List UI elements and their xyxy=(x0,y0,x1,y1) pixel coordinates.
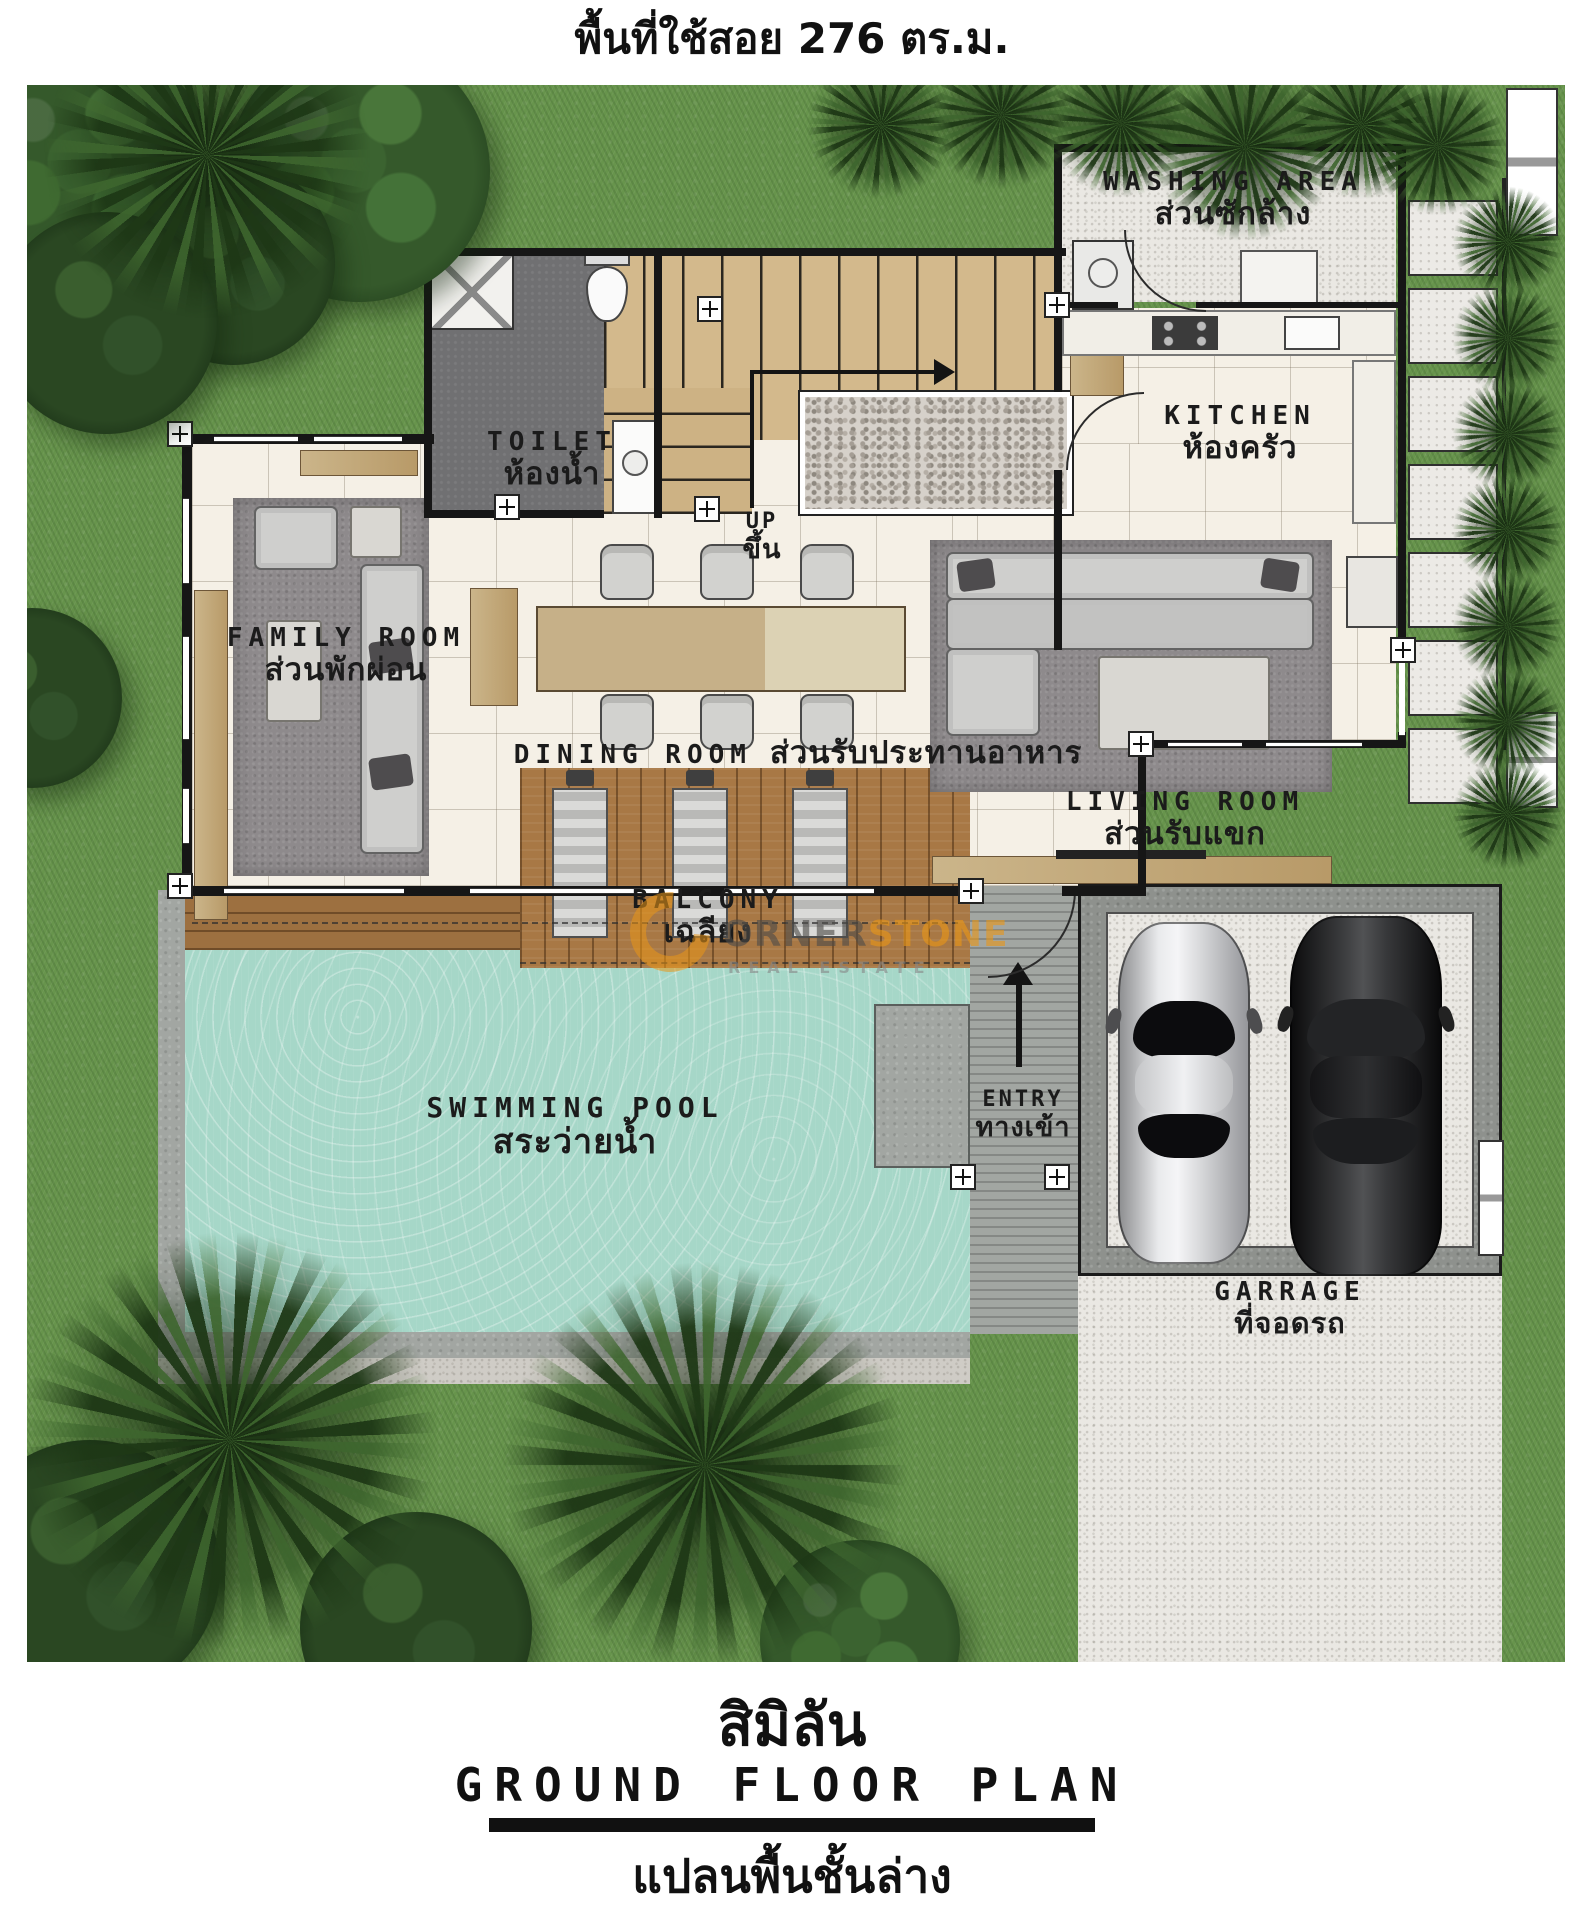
column-marker xyxy=(694,496,720,522)
window xyxy=(1266,742,1362,747)
column-marker xyxy=(1128,731,1154,757)
toilet-label: TOILET ห้องน้ำ xyxy=(487,428,617,492)
sun-lounger xyxy=(552,788,608,938)
usable-area-title: พื้นที่ใช้สอย 276 ตร.ม. xyxy=(575,6,1010,72)
dining-chair xyxy=(800,544,854,600)
sofa-pillow xyxy=(1260,557,1300,592)
lounger-headrest xyxy=(686,770,714,786)
wall xyxy=(1054,308,1062,392)
garage-side-door xyxy=(1478,1140,1504,1256)
window xyxy=(1399,652,1405,736)
window xyxy=(183,636,189,740)
window xyxy=(183,788,189,844)
wall xyxy=(596,248,1066,256)
stove xyxy=(1152,316,1218,350)
family-sofa xyxy=(360,564,424,854)
entry-arrow-stem xyxy=(1016,985,1022,1067)
wall xyxy=(654,248,662,518)
kitchen-counter-right xyxy=(1352,360,1396,524)
car-roof xyxy=(1135,1055,1233,1113)
car-windshield xyxy=(1307,999,1426,1060)
living-sofa-chaise xyxy=(946,648,1040,736)
column-marker xyxy=(494,494,520,520)
sofa-pillow xyxy=(956,558,996,593)
dining-table xyxy=(536,606,906,692)
sofa-pillow xyxy=(368,753,414,791)
car-windshield xyxy=(1133,1001,1236,1059)
living-sofa-back xyxy=(946,552,1314,600)
window-side-console xyxy=(194,590,228,920)
window xyxy=(314,436,402,442)
car-rear-window xyxy=(1138,1114,1230,1158)
side-table xyxy=(350,506,402,558)
dining-room-label: DINING ROOM ส่วนรับประทานอาหาร xyxy=(514,736,1083,771)
wall xyxy=(1062,302,1118,308)
wall xyxy=(1196,302,1398,308)
column-marker xyxy=(167,421,193,447)
washing-area-label: WASHING AREA ส่วนซักล้าง xyxy=(1103,168,1363,232)
laundry-table xyxy=(1240,250,1318,308)
sink-basin-icon xyxy=(622,450,648,476)
column-marker xyxy=(1044,292,1070,318)
kitchen-label: KITCHEN ห้องครัว xyxy=(1164,402,1316,466)
lounger-headrest xyxy=(566,770,594,786)
stair-arrow-stem-horizontal xyxy=(750,370,938,374)
family-room-label: FAMILY ROOM ส่วนพักผ่อน xyxy=(227,624,465,688)
window xyxy=(183,498,189,584)
wall xyxy=(424,248,432,518)
column-marker xyxy=(1390,637,1416,663)
column-marker xyxy=(950,1164,976,1190)
lounger-headrest xyxy=(806,770,834,786)
car-roof xyxy=(1310,1056,1422,1117)
swimming-pool-label: SWIMMING POOL สระว่ายน้ำ xyxy=(426,1092,723,1161)
tree-palm-small xyxy=(1452,758,1564,870)
living-sofa-seat xyxy=(946,598,1314,650)
dining-chair xyxy=(600,544,654,600)
window xyxy=(1168,742,1242,747)
wall xyxy=(1062,886,1146,896)
title-underline-bar xyxy=(489,1818,1095,1832)
floor-plan-page: พื้นที่ใช้สอย 276 ตร.ม. xyxy=(0,0,1585,1909)
column-marker xyxy=(167,873,193,899)
stair-arrow-stem-vertical xyxy=(750,372,754,508)
kitchen-counter-top xyxy=(1062,310,1396,356)
column-marker xyxy=(697,296,723,322)
living-room-label: LIVING ROOM ส่วนรับแขก xyxy=(1066,788,1304,852)
plan-title-en: GROUND FLOOR PLAN xyxy=(455,1758,1130,1812)
entry-label: ENTRY ทางเข้า xyxy=(976,1088,1071,1143)
stairs-up-label: UP ขึ้น xyxy=(743,510,782,565)
site-plot: WASHING AREA ส่วนซักล้าง KITCHEN ห้องครั… xyxy=(27,85,1565,1662)
living-coffee-table xyxy=(1098,656,1270,750)
tree-palm xyxy=(27,1230,440,1650)
watermark-tagline: REAL ESTATE xyxy=(728,958,933,977)
column-marker xyxy=(1044,1164,1070,1190)
garage-label: GARRAGE ที่จอดรถ xyxy=(1214,1278,1366,1340)
watermark-brand: ORNERSTONE xyxy=(722,914,1009,955)
black-car xyxy=(1290,916,1442,1276)
silver-car xyxy=(1118,922,1250,1264)
gravel-court xyxy=(800,392,1072,514)
kitchen-sink xyxy=(1284,316,1340,350)
sideboard xyxy=(470,588,518,706)
wall xyxy=(1054,470,1062,650)
wall-console xyxy=(300,450,418,476)
watermark: ORNERSTONE REAL ESTATE xyxy=(630,888,990,998)
sliding-door xyxy=(224,888,404,894)
fridge xyxy=(1346,556,1398,628)
window xyxy=(214,436,298,442)
armchair xyxy=(254,506,338,570)
site-plan: WASHING AREA ส่วนซักล้าง KITCHEN ห้องครั… xyxy=(27,85,1565,1662)
pool-ledge-platform xyxy=(874,1004,970,1168)
watermark-logo-icon xyxy=(614,876,727,989)
plan-title-th: แปลนพื้นชั้นล่าง xyxy=(632,1840,951,1909)
stair-arrow-head-icon xyxy=(934,359,955,385)
washing-machine-drum-icon xyxy=(1088,258,1118,288)
tree-bushy xyxy=(27,608,122,788)
wall xyxy=(1398,144,1406,650)
tv-console xyxy=(932,856,1332,884)
